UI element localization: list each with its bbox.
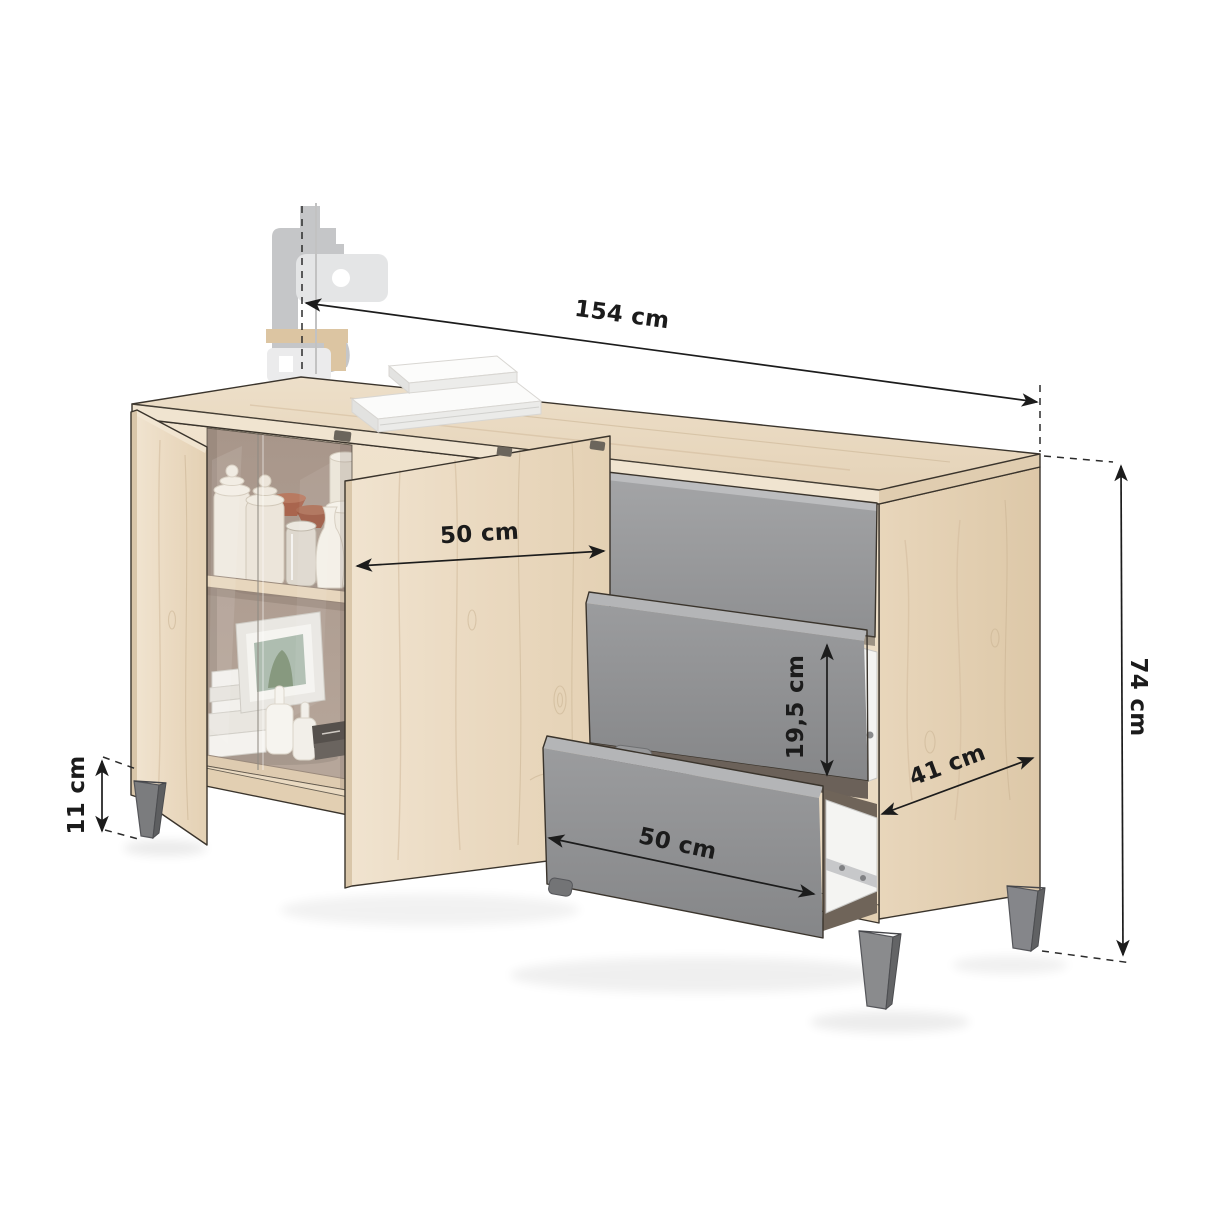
dimension-label-height: 74 cm [1125, 657, 1151, 736]
dimension-label-drawer-height: 19,5 cm [783, 655, 809, 759]
hinge-watermark-icon [266, 203, 388, 382]
leg-back-right [1007, 886, 1045, 951]
leg-front-left [134, 781, 166, 838]
dimension-height: 74 cm [1042, 456, 1151, 963]
dimension-label-width: 154 cm [573, 296, 671, 335]
leg-front-right [859, 931, 901, 1009]
left-door-open [131, 410, 207, 845]
left-compartment-interior [207, 428, 366, 791]
sideboard-illustration: 154 cm 74 cm 41 cm 50 cm 19,5 cm 50 cm [0, 0, 1217, 1217]
dimension-label-door-width: 50 cm [439, 519, 520, 550]
door-hinge-top-left [333, 430, 351, 442]
right-side-panel [879, 467, 1040, 919]
product-dimension-diagram: 154 cm 74 cm 41 cm 50 cm 19,5 cm 50 cm [0, 0, 1217, 1217]
dimension-label-leg-height: 11 cm [64, 755, 90, 834]
